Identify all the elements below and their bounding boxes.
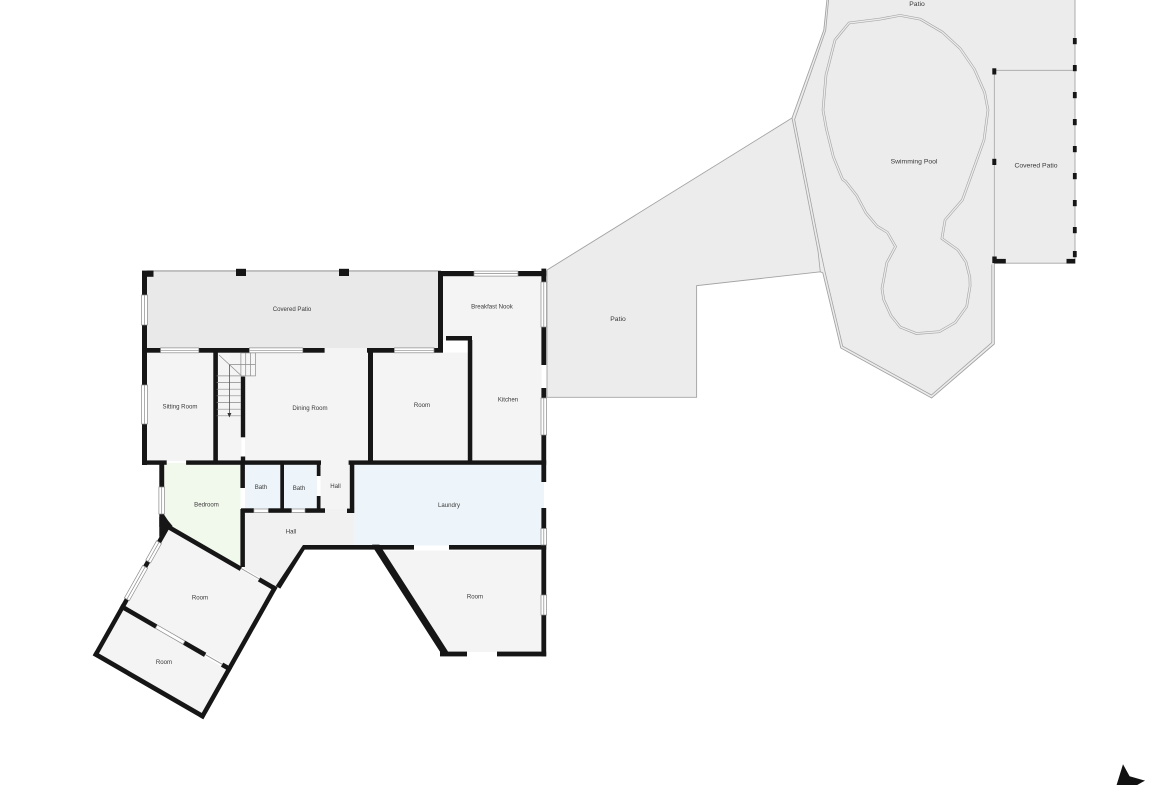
svg-text:Covered Patio: Covered Patio — [1014, 163, 1057, 170]
svg-text:Room: Room — [414, 402, 430, 409]
svg-text:Swimming Pool: Swimming Pool — [891, 158, 938, 165]
svg-text:Room: Room — [192, 595, 208, 602]
svg-text:Hall: Hall — [286, 529, 297, 536]
svg-text:Patio: Patio — [610, 316, 626, 323]
svg-text:Bedroom: Bedroom — [194, 502, 219, 509]
svg-text:Dining Room: Dining Room — [292, 405, 327, 412]
svg-text:Breakfast Nook: Breakfast Nook — [471, 304, 514, 311]
svg-text:Covered Patio: Covered Patio — [273, 306, 312, 313]
svg-text:Sitting Room: Sitting Room — [163, 404, 198, 411]
svg-text:Bath: Bath — [293, 485, 306, 492]
svg-text:Room: Room — [156, 659, 172, 666]
svg-text:Laundry: Laundry — [438, 502, 461, 509]
svg-text:Patio: Patio — [909, 1, 925, 8]
svg-text:Bath: Bath — [255, 484, 268, 491]
svg-text:Room: Room — [467, 594, 483, 601]
svg-text:Hall: Hall — [330, 483, 341, 490]
svg-text:Kitchen: Kitchen — [498, 397, 518, 404]
